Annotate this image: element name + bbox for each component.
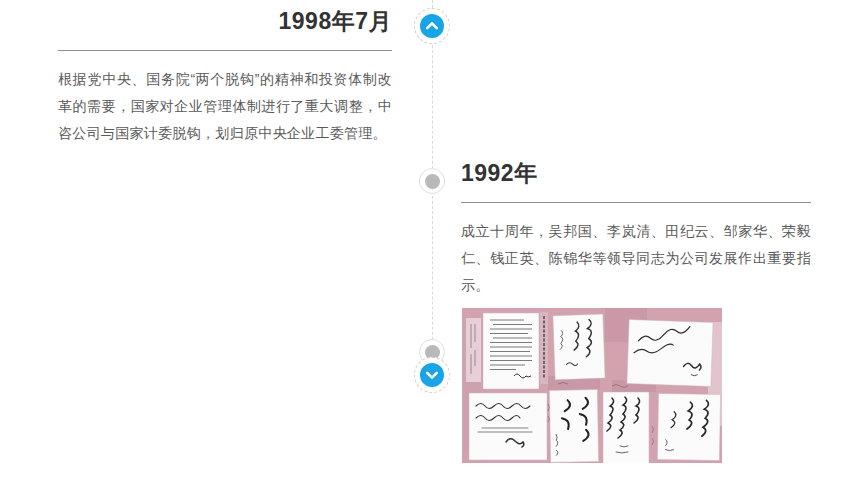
- event-title-1998: 1998年7月: [58, 6, 392, 36]
- event-title-1992: 1992年: [461, 158, 811, 188]
- up-button-circle: [420, 14, 444, 38]
- timeline-dashed-line: [432, 0, 433, 390]
- chevron-up-icon: [420, 14, 444, 38]
- event-body-1998: 根据党中央、国务院“两个脱钩”的精神和投资体制改革的需要，国家对企业管理体制进行…: [58, 66, 392, 147]
- timeline-node-dot-1992: [419, 168, 445, 194]
- chevron-down-icon: [420, 363, 444, 387]
- event-divider: [58, 50, 392, 51]
- event-body-1992: 成立十周年，吴邦国、李岚清、田纪云、邹家华、荣毅仁、钱正英、陈锦华等领导同志为公…: [461, 218, 811, 299]
- event-divider: [461, 202, 811, 203]
- timeline-up-button[interactable]: [414, 8, 450, 44]
- down-button-circle: [420, 363, 444, 387]
- timeline-down-button[interactable]: [414, 357, 450, 393]
- inscriptions-photo: [462, 308, 722, 463]
- timeline-section: 1998年7月 根据党中央、国务院“两个脱钩”的精神和投资体制改革的需要，国家对…: [0, 0, 851, 480]
- timeline-event-1992: 1992年 成立十周年，吴邦国、李岚清、田纪云、邹家华、荣毅仁、钱正英、陈锦华等…: [461, 158, 811, 299]
- timeline-event-1998: 1998年7月 根据党中央、国务院“两个脱钩”的精神和投资体制改革的需要，国家对…: [58, 6, 392, 147]
